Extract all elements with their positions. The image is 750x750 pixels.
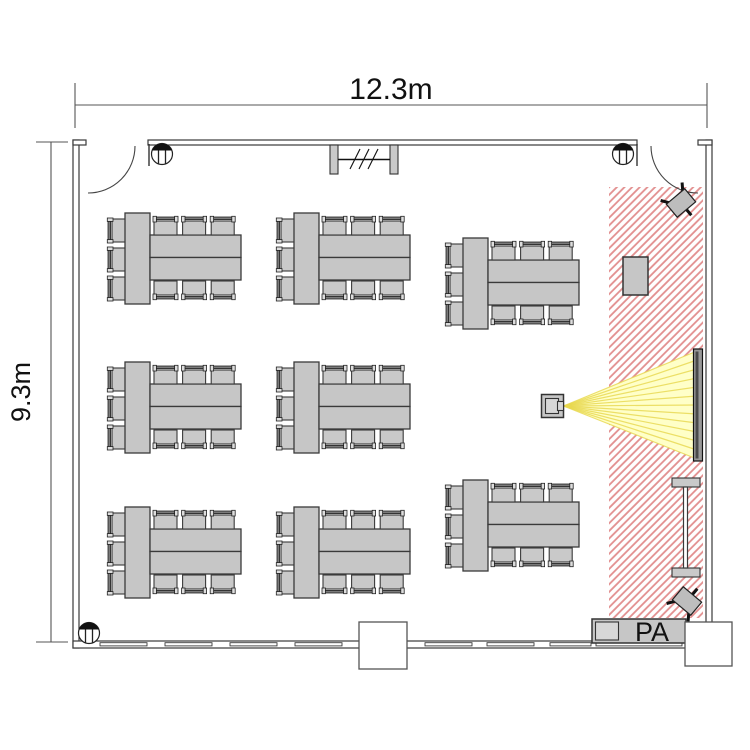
width-dimension-label: 12.3m [349,73,432,106]
long-table [150,552,241,575]
head-table [463,480,488,571]
head-table [294,362,319,453]
chair [276,218,295,243]
chair [153,216,178,235]
chair [210,281,235,300]
chair [322,430,347,449]
chair [276,247,295,272]
chair [153,365,178,384]
head-table [463,238,488,329]
long-table [150,235,241,258]
table-group [276,507,410,598]
chair [548,483,573,502]
chair [107,218,126,243]
long-table [150,384,241,407]
chair [107,367,126,392]
window-segment [230,643,277,646]
chair [548,241,573,260]
chair [322,365,347,384]
wall-top-left-stub [73,140,86,145]
chair [107,276,126,301]
chair [445,485,464,510]
long-table [319,384,410,407]
long-table [319,529,410,552]
chair [379,510,404,529]
height-dimension-label: 9.3m [6,362,36,422]
long-table [150,529,241,552]
chair [153,430,178,449]
column-icon [152,143,173,164]
chair [210,575,235,594]
chair [276,396,295,421]
chair [182,365,207,384]
chair [445,243,464,268]
chair [351,575,376,594]
chair [351,281,376,300]
long-table [150,407,241,430]
head-table [294,507,319,598]
equipment-box-icon [623,257,648,295]
long-table [319,235,410,258]
chair [445,514,464,539]
long-table [488,283,579,306]
long-table [319,552,410,575]
chair [276,425,295,450]
chair [107,541,126,566]
chair [379,365,404,384]
wall-top-right-stub [698,140,712,145]
chair [445,543,464,568]
dimension-left: 9.3m [6,142,68,642]
chair [351,365,376,384]
chair [379,281,404,300]
chair [379,575,404,594]
screen-icon [694,349,703,461]
window-segment [487,643,534,646]
table-group [107,213,241,304]
chair [520,483,545,502]
chair [276,276,295,301]
chair [520,306,545,325]
window-segment [165,643,212,646]
chair [107,425,126,450]
long-table [488,260,579,283]
long-table [319,258,410,281]
chair [153,510,178,529]
head-table [125,507,150,598]
chair [210,430,235,449]
partition-top [330,145,398,174]
chair [276,541,295,566]
chair [276,570,295,595]
chair [491,483,516,502]
chair [153,281,178,300]
chair [210,365,235,384]
chair [322,575,347,594]
window-segment [100,643,147,646]
table-group [445,480,579,571]
chair [107,396,126,421]
chair [276,367,295,392]
long-table [488,502,579,525]
chair [107,247,126,272]
head-table [294,213,319,304]
chair [491,306,516,325]
table-group [276,213,410,304]
door-top-right [637,144,698,193]
dimension-top: 12.3m [75,73,707,128]
floor-plan-drawing: 12.3m 9.3m [0,0,750,750]
chair [182,430,207,449]
floor-plan-canvas: 12.3m 9.3m [0,0,750,750]
chair [379,430,404,449]
chair [322,281,347,300]
chair [210,216,235,235]
long-table [319,407,410,430]
chair [491,241,516,260]
table-group [276,362,410,453]
chair [351,216,376,235]
long-table [488,525,579,548]
wall-right [706,140,712,648]
table-group [107,507,241,598]
bottom-right-bay [685,622,732,666]
chair [322,510,347,529]
window-segment [295,643,342,646]
chair [107,570,126,595]
chair [182,510,207,529]
chair [520,548,545,567]
table-group [445,238,579,329]
chair [210,510,235,529]
chair [182,281,207,300]
column-icon [613,143,634,164]
chair [445,301,464,326]
chair [351,510,376,529]
chair [491,548,516,567]
window-segment [550,643,591,646]
window-segment [425,643,472,646]
pa-label: PA [635,617,669,647]
chair [276,512,295,537]
projector-icon [542,395,564,418]
pa-table: PA [592,617,686,647]
chair [351,430,376,449]
chair [322,216,347,235]
chair [445,272,464,297]
wall-top [148,140,637,145]
seating-area [107,213,579,598]
bottom-center-bay [359,622,407,669]
column-icon [79,622,100,643]
chair [107,512,126,537]
chair [548,306,573,325]
chair [182,575,207,594]
chair [548,548,573,567]
chair [520,241,545,260]
chair [153,575,178,594]
wall-left [73,140,79,648]
chair [379,216,404,235]
long-table [150,258,241,281]
head-table [125,362,150,453]
table-group [107,362,241,453]
head-table [125,213,150,304]
chair [182,216,207,235]
door-top-left [88,144,149,193]
